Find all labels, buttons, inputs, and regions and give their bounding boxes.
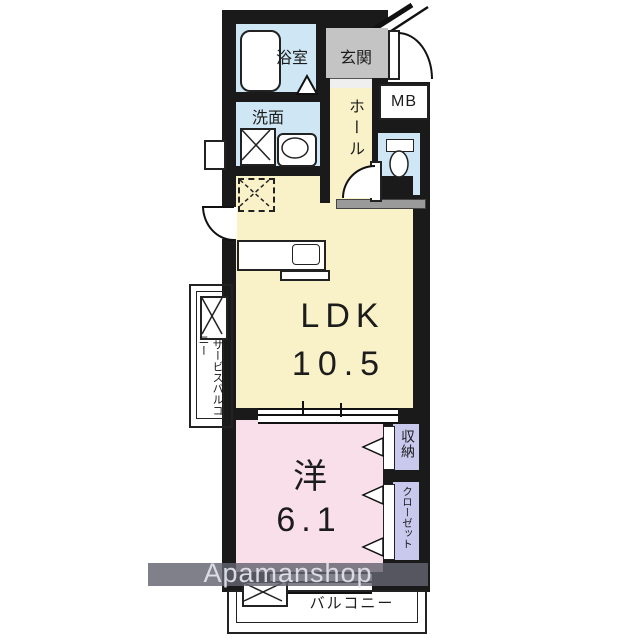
left-door-arc-icon: [202, 206, 234, 241]
closet-door-strip: [383, 484, 395, 560]
storage-door-triangle-icon: [362, 437, 384, 457]
service-balcony-label: サービスバルコニー: [196, 334, 224, 420]
meter-box-label: MB: [391, 93, 417, 111]
kitchen-counter-edge: [280, 270, 330, 281]
sliding-door-track: [258, 414, 398, 416]
sliding-door-tick-1: [302, 401, 304, 415]
ldk-size-label: 10.5: [272, 345, 406, 384]
entrance-label: 玄関: [340, 44, 372, 68]
service-balcony-washer-cross-icon: [200, 296, 224, 336]
closet-door-triangle-bottom-icon: [362, 537, 384, 557]
floor-plan: MB サービスバルコニー: [0, 0, 640, 640]
sink-bowl-icon: [277, 133, 313, 163]
storage-label: 収納: [398, 429, 418, 469]
pipe-space-box: [204, 140, 226, 170]
sliding-door-tick-2: [340, 403, 342, 417]
storage-door-strip: [383, 426, 395, 470]
wall-patch-hall-left: [320, 176, 330, 203]
kitchen-sink-icon: [292, 244, 320, 265]
service-balcony-label-1: サービス: [211, 339, 223, 383]
meter-box: MB: [379, 84, 429, 120]
sliding-door: [258, 408, 398, 424]
watermark-text: Apamanshop: [148, 558, 428, 589]
wc-label: WC: [384, 175, 409, 191]
washroom-label: 洗面: [252, 104, 284, 128]
bath-label: 浴室: [276, 44, 308, 68]
hall-label: ホール: [342, 98, 366, 198]
fridge-pad-cross-icon: [238, 178, 271, 208]
ldk-label: LDK: [285, 297, 400, 336]
bathtub-icon: [240, 30, 281, 92]
closet-label: クローゼット: [400, 486, 415, 558]
washer-pad-cross-icon: [240, 128, 272, 162]
bedroom-size-label: 6.1: [266, 501, 352, 540]
bedroom-label: 洋: [290, 449, 330, 498]
bath-door-icon: [295, 74, 319, 96]
balcony-label: バルコニー: [300, 592, 404, 613]
closet-door-triangle-top-icon: [362, 485, 384, 505]
